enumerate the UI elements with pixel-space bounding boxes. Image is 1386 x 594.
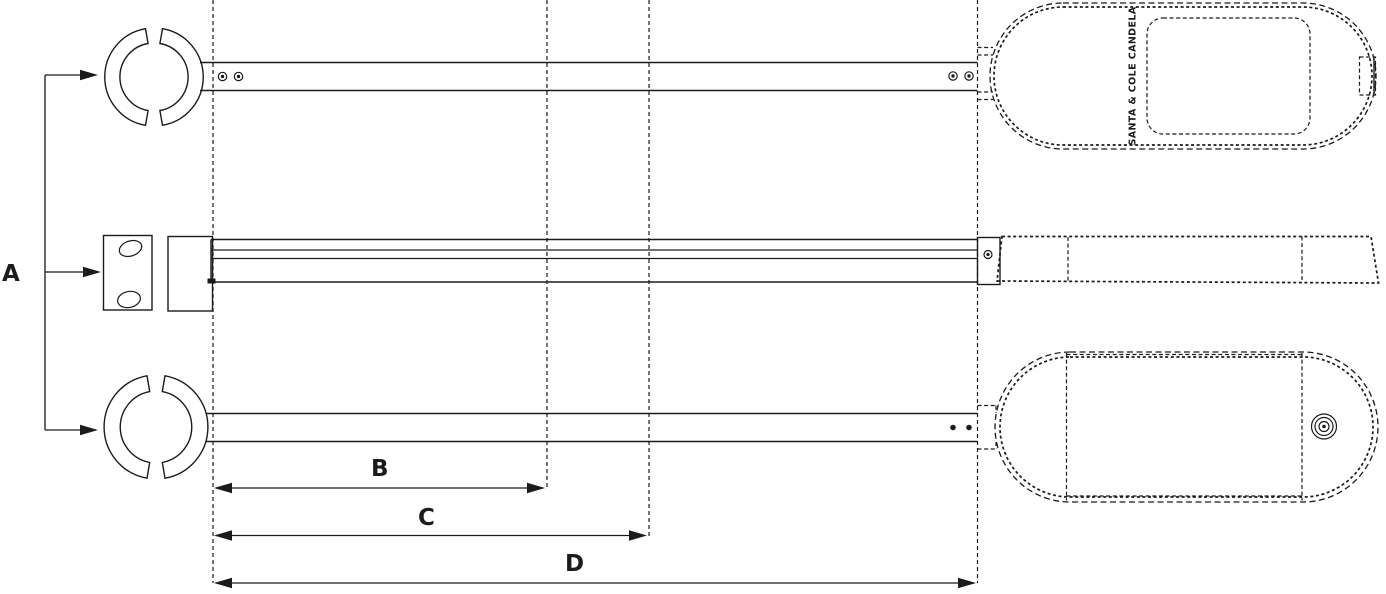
arm-side-view xyxy=(208,240,978,284)
arrowhead-icon xyxy=(214,483,232,494)
head-glass-outline xyxy=(1067,353,1303,501)
clamp-left-half xyxy=(104,376,150,478)
arm-joint-step xyxy=(208,279,216,284)
dim-c-label: C xyxy=(418,505,435,531)
arm-bottom-view xyxy=(206,414,978,442)
head-mount-tab xyxy=(978,48,994,100)
arrowhead-icon xyxy=(629,530,647,541)
rivet-dot xyxy=(966,425,972,431)
clamp-left-half xyxy=(105,29,148,126)
dim-b-label: B xyxy=(371,456,389,482)
clamp-right-half xyxy=(162,376,208,478)
head-outline-outer xyxy=(995,352,1378,502)
dim-a-label: A xyxy=(2,261,20,287)
dimension-c: C xyxy=(214,505,647,541)
rivet-dot xyxy=(950,425,956,431)
slot-hole xyxy=(116,289,142,309)
pole-clamp-top-view xyxy=(105,29,203,126)
clamp-right-half xyxy=(160,29,203,126)
bottom-view xyxy=(104,352,1378,502)
dimension-b: B xyxy=(214,456,545,493)
luminaire-dimension-drawing: SANTA & COLE CANDELA xyxy=(0,0,1386,594)
pole-clamp-bottom-view xyxy=(104,376,208,478)
construction-lines xyxy=(213,0,978,583)
screw-icon xyxy=(218,72,226,80)
top-view: SANTA & COLE CANDELA xyxy=(105,3,1376,149)
arrowhead-icon xyxy=(214,578,232,589)
head-panel-outline xyxy=(1147,18,1310,134)
screw-icon xyxy=(965,72,973,80)
arrowhead-icon xyxy=(80,70,98,81)
arrowhead-icon xyxy=(958,578,976,589)
latch-knob-icon xyxy=(1312,414,1337,439)
luminaire-head-top-view: SANTA & COLE CANDELA xyxy=(978,3,1377,149)
arm-top-view xyxy=(200,63,978,91)
arrowhead-icon xyxy=(80,425,98,436)
dimension-d: D xyxy=(214,551,976,588)
arrowhead-icon xyxy=(527,483,545,494)
mount-plate-side-view xyxy=(104,236,153,311)
brand-text: SANTA & COLE CANDELA xyxy=(1128,6,1139,145)
head-mount-tab xyxy=(978,406,997,450)
arrowhead-icon xyxy=(214,530,232,541)
head-outline-inner xyxy=(1000,357,1373,497)
screw-icon xyxy=(949,72,957,80)
head-outline-inner xyxy=(994,7,1372,145)
head-profile-outline xyxy=(997,237,1379,284)
slot-hole xyxy=(117,238,144,259)
luminaire-head-side-view xyxy=(997,237,1379,284)
dim-d-label: D xyxy=(565,551,584,577)
mount-plate xyxy=(104,236,153,311)
screw-icon xyxy=(234,72,242,80)
clamp-block-side-view xyxy=(168,237,213,312)
screw-icon xyxy=(986,253,989,256)
side-view xyxy=(104,236,1379,312)
head-end-latch xyxy=(1360,57,1376,95)
head-outline-outer xyxy=(990,3,1376,149)
technical-drawing-page: SANTA & COLE CANDELA xyxy=(0,0,1386,594)
luminaire-head-bottom-view xyxy=(978,352,1379,502)
arrowhead-icon xyxy=(83,267,101,278)
dimension-a: A xyxy=(2,70,101,436)
